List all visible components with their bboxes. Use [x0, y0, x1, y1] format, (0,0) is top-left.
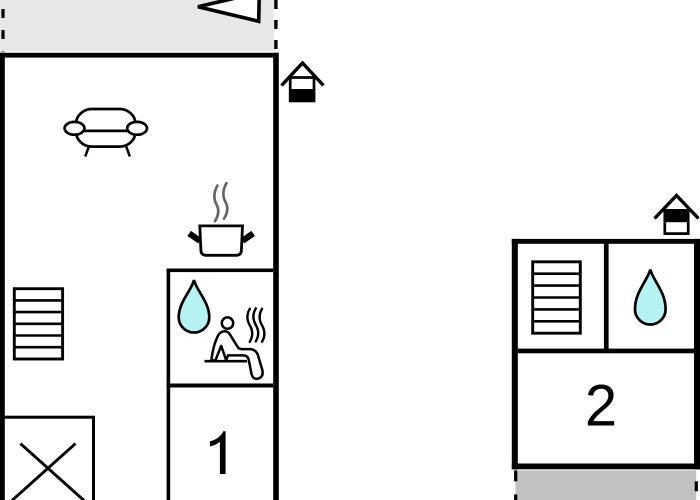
svg-text:2: 2: [585, 373, 617, 438]
